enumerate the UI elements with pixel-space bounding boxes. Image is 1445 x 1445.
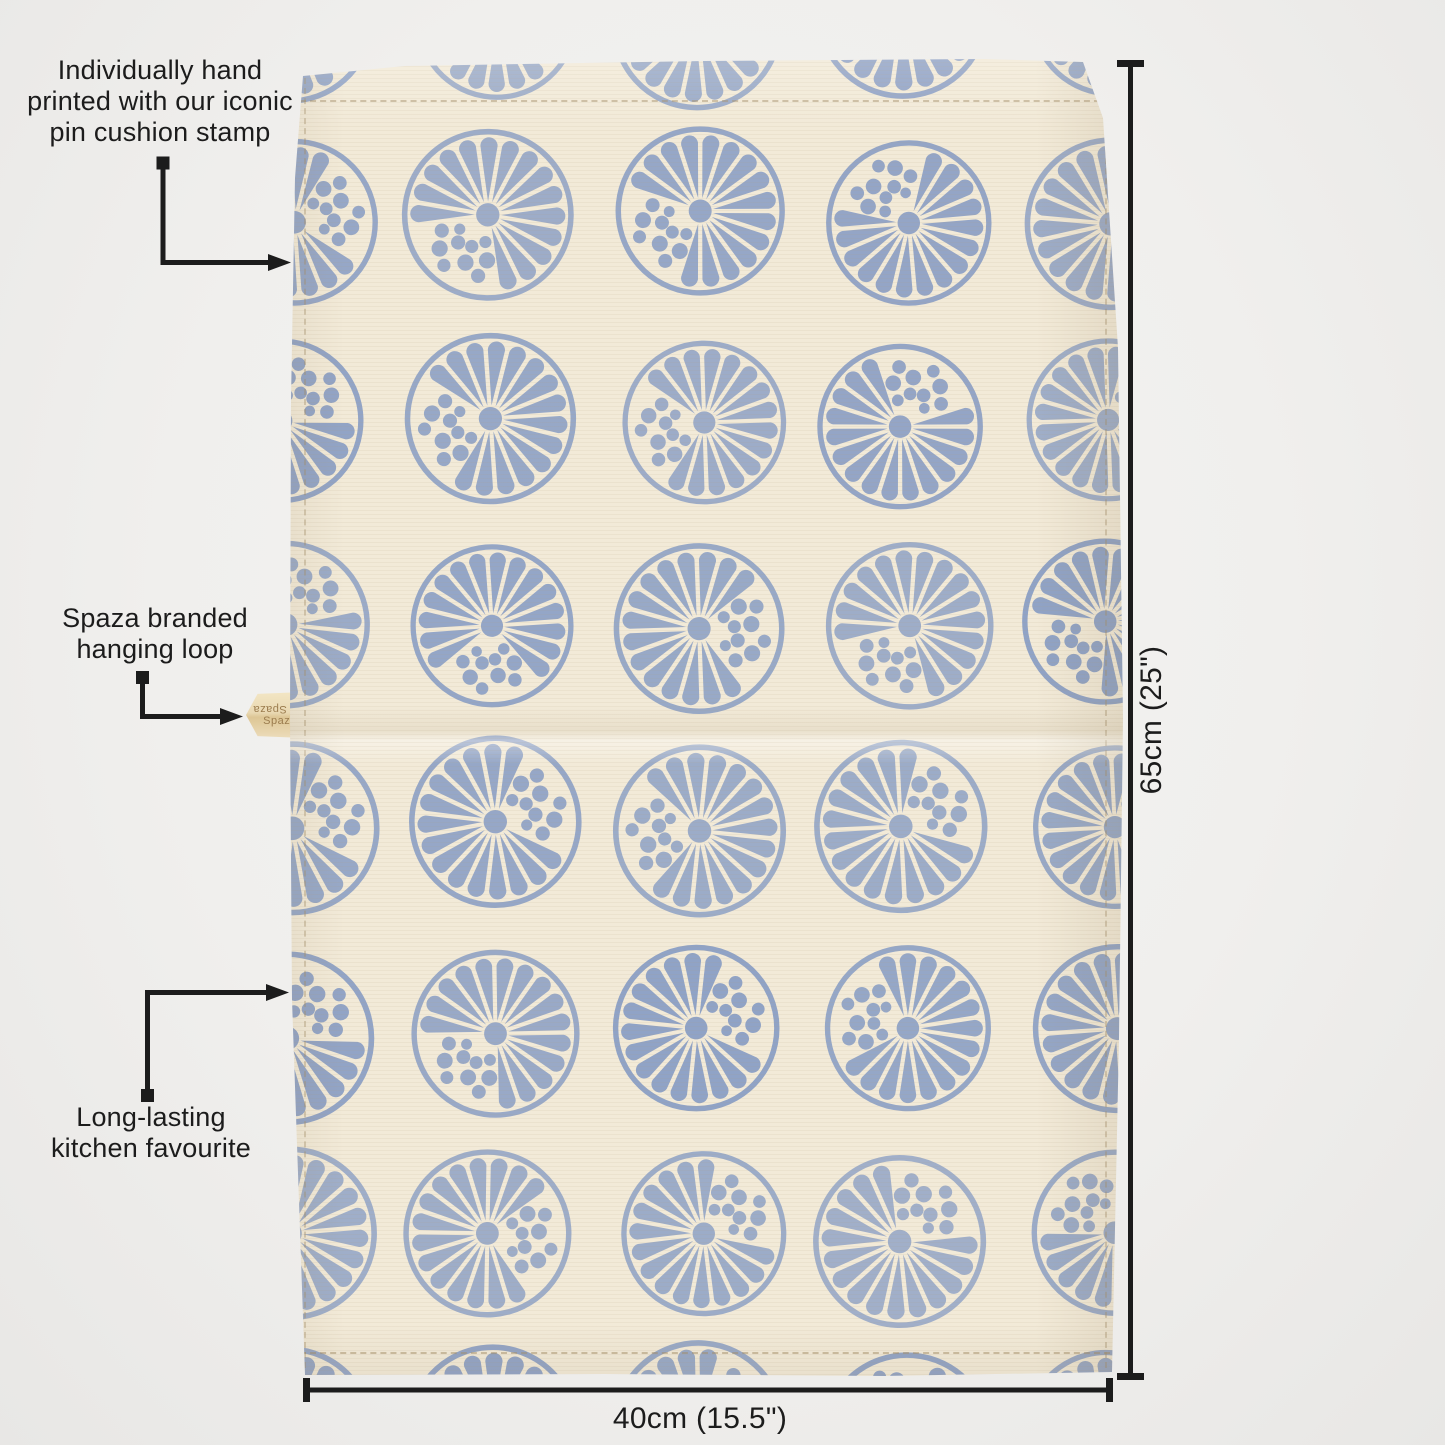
width-dimension-line bbox=[307, 1378, 1110, 1402]
product-photo: Spaza Spaza bbox=[0, 0, 1445, 1445]
annotation-arrow-durability bbox=[141, 984, 289, 1102]
annotation-arrow-stamp bbox=[157, 157, 292, 272]
annotation-line: Individually hand bbox=[25, 55, 295, 86]
connector-line bbox=[163, 169, 268, 263]
annotation-durability: Long-lasting kitchen favourite bbox=[20, 1102, 282, 1164]
connector-square bbox=[157, 157, 170, 170]
annotation-line: printed with our iconic bbox=[25, 86, 295, 117]
connector-square bbox=[136, 671, 149, 684]
connector-square bbox=[141, 1089, 154, 1102]
annotation-line: Long-lasting bbox=[20, 1102, 282, 1133]
annotation-line: hanging loop bbox=[25, 634, 285, 665]
annotation-line: Spaza branded bbox=[25, 603, 285, 634]
arrowhead-icon bbox=[266, 984, 289, 1001]
annotation-stamp: Individually hand printed with our iconi… bbox=[25, 55, 295, 148]
height-dimension-label: 65cm (25") bbox=[1137, 570, 1167, 870]
connector-line bbox=[148, 993, 267, 1090]
annotation-arrow-loop bbox=[136, 671, 243, 725]
annotation-line: pin cushion stamp bbox=[25, 117, 295, 148]
width-dimension-label: 40cm (15.5") bbox=[550, 1402, 850, 1436]
arrowhead-icon bbox=[268, 254, 291, 271]
fabric-shading bbox=[285, 58, 1125, 1378]
connector-line bbox=[143, 684, 221, 717]
arrowhead-icon bbox=[220, 708, 243, 725]
annotation-line: kitchen favourite bbox=[20, 1133, 282, 1164]
tea-towel bbox=[285, 58, 1125, 1378]
annotation-loop: Spaza branded hanging loop bbox=[25, 603, 285, 665]
